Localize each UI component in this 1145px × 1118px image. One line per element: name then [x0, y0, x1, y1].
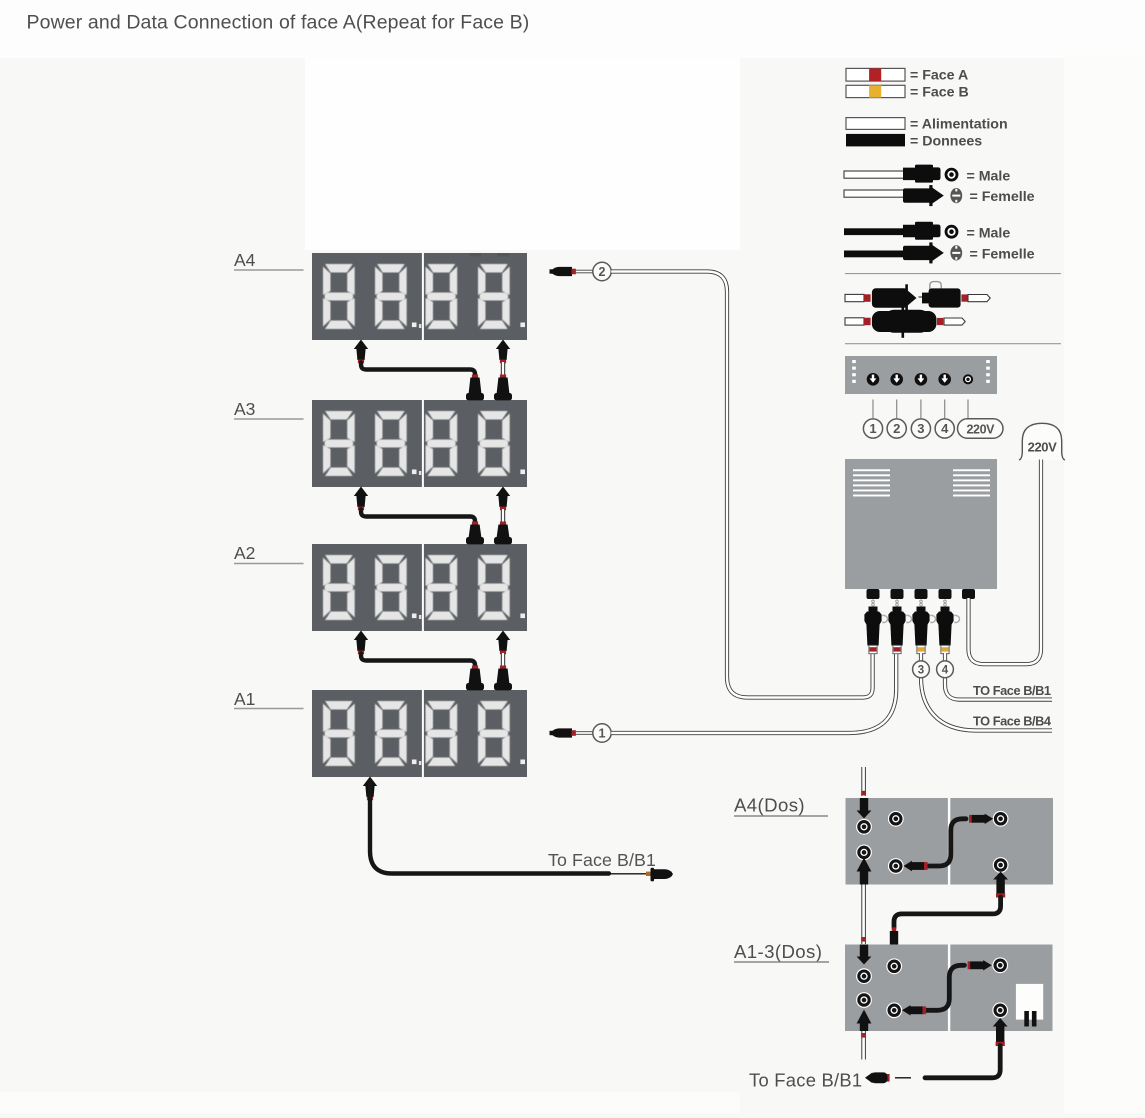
svg-text:A4(Dos): A4(Dos) [734, 795, 805, 816]
svg-text:TO Face B/B4: TO Face B/B4 [973, 714, 1052, 729]
svg-text:A1-3(Dos): A1-3(Dos) [734, 941, 822, 962]
svg-text:To Face B/B1: To Face B/B1 [548, 850, 656, 870]
svg-text:= Face A: = Face A [910, 68, 968, 84]
svg-text:3: 3 [917, 421, 924, 436]
svg-text:2: 2 [893, 421, 900, 436]
svg-text:= Alimentation: = Alimentation [910, 117, 1008, 133]
svg-text:Power and Data Connection of f: Power and Data Connection of face A(Repe… [27, 12, 530, 34]
svg-text:A4: A4 [234, 250, 256, 270]
svg-text:4: 4 [941, 421, 949, 436]
svg-text:2: 2 [599, 265, 606, 279]
svg-text:A1: A1 [234, 689, 255, 709]
svg-text:220V: 220V [967, 423, 996, 437]
svg-text:= Male: = Male [967, 226, 1011, 242]
svg-text:To Face B/B1: To Face B/B1 [749, 1070, 862, 1091]
svg-text:= Face B: = Face B [910, 84, 969, 100]
svg-text:4: 4 [942, 664, 949, 676]
svg-text:= Male: = Male [967, 169, 1011, 185]
svg-text:1: 1 [869, 421, 876, 436]
svg-text:3: 3 [918, 664, 924, 676]
svg-text:A3: A3 [234, 399, 255, 419]
svg-text:220V: 220V [1028, 440, 1057, 455]
svg-text:TO Face B/B1: TO Face B/B1 [973, 683, 1051, 698]
svg-text:= Femelle: = Femelle [970, 189, 1035, 205]
svg-text:A2: A2 [234, 543, 255, 563]
svg-text:1: 1 [599, 727, 606, 741]
svg-text:= Donnees: = Donnees [910, 133, 982, 149]
svg-text:= Femelle: = Femelle [970, 246, 1035, 262]
